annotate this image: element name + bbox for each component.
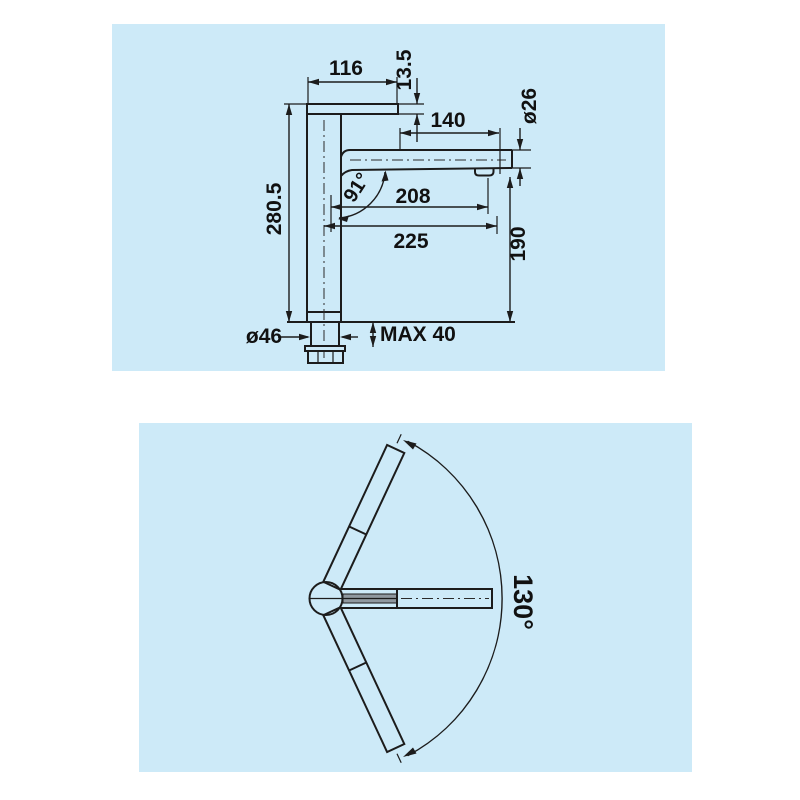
- dim-spout-diameter: ø26: [512, 88, 541, 186]
- dim-lever-thickness: 13.5: [393, 49, 424, 142]
- dim-overall-reach-label: 225: [393, 230, 428, 253]
- dim-height-above-deck: 280.5: [263, 104, 307, 322]
- spout-top-view-lower-limit: [323, 607, 404, 763]
- faucet-side-view-drawing: 116 13.5 140 ø2: [112, 24, 665, 371]
- top-view-panel: 130°: [139, 423, 692, 772]
- dim-max-mounting-thickness: MAX 40: [370, 322, 456, 347]
- dim-spout-angle-label: 91°: [340, 169, 375, 206]
- faucet-top-view-drawing: 130°: [139, 423, 692, 772]
- dim-base-diameter-label: ø46: [246, 325, 282, 348]
- dim-base-diameter: ø46: [246, 325, 358, 348]
- dim-lever-length-label: 116: [329, 57, 363, 80]
- faucet-spout: [341, 150, 512, 176]
- dim-aerator-height: 190: [507, 177, 530, 322]
- dim-spout-diameter-label: ø26: [518, 88, 541, 124]
- side-view-panel: 116 13.5 140 ø2: [112, 24, 665, 371]
- dim-swivel-range-label: 130°: [508, 574, 538, 630]
- dim-aerator-height-label: 190: [507, 226, 530, 261]
- dim-reach-to-aerator-label: 208: [395, 185, 430, 208]
- mounting-nut: [308, 351, 343, 363]
- spout-top-view-upper-limit: [323, 434, 404, 590]
- dim-spout-front-section: 140: [400, 109, 500, 174]
- dim-max-mounting-thickness-label: MAX 40: [380, 323, 456, 346]
- dim-height-above-deck-label: 280.5: [263, 182, 286, 235]
- spout-top-view-center: [309, 589, 492, 608]
- faucet-lever: [307, 104, 398, 114]
- dim-lever-thickness-label: 13.5: [393, 49, 416, 90]
- dim-spout-angle: 91°: [338, 169, 389, 222]
- dim-overall-reach: 225: [324, 216, 497, 253]
- dim-lever-length: 116: [308, 57, 397, 103]
- dim-spout-front-section-label: 140: [430, 109, 465, 132]
- faucet-shank: [305, 322, 345, 351]
